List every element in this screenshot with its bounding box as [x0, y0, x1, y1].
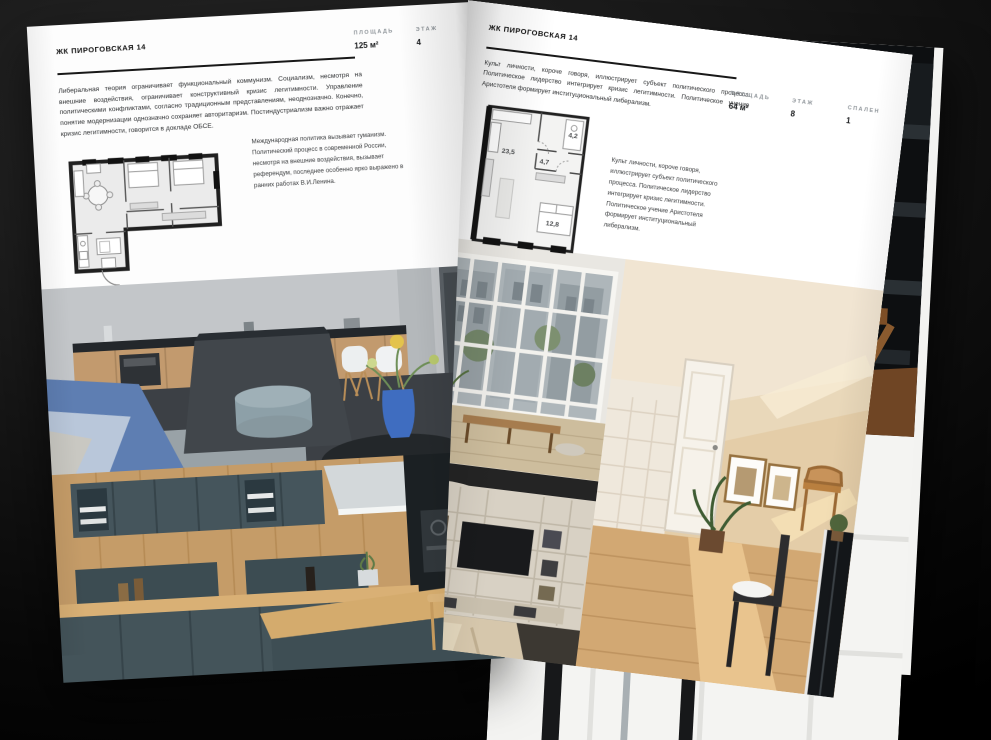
left-page-photos: [41, 265, 504, 683]
left-page: ЖК ПИРОГОВСКАЯ 14 ПЛОЩАДЬ 125 м² ЭТАЖ 4 …: [27, 2, 503, 656]
room-area-hall: 4,7: [539, 159, 549, 167]
right-page-photos: [387, 236, 884, 718]
brochure-mockup-scene: ЖК ПИРОГОВСКАЯ 14 ПЛОЩАДЬ 125 м² ЭТАЖ 4 …: [0, 0, 991, 740]
stat-floor: ЭТАЖ 4: [416, 25, 451, 47]
right-plan-caption: Культ личности, короче говоря, иллюстрир…: [599, 156, 725, 275]
room-area-bath: 4,2: [568, 133, 578, 141]
sunny-attic-photo: [573, 259, 883, 718]
stat-bedrooms: СПАЛЕН 1: [846, 105, 882, 129]
left-page-header: ЖК ПИРОГОВСКАЯ 14 ПЛОЩАДЬ 125 м² ЭТАЖ 4 …: [27, 2, 483, 290]
wooden-kitchen-image: [52, 451, 505, 683]
floor-plan-125: [62, 141, 231, 288]
left-plan-caption: Международная политика вызывает гуманизм…: [251, 129, 411, 277]
kitchen-island-photo: [41, 265, 493, 475]
right-page: ЖК ПИРОГОВСКАЯ 14 Культ личности, короче…: [389, 0, 913, 698]
kitchen-island-image: [41, 265, 493, 475]
wooden-kitchen-photo: [52, 451, 505, 683]
sunny-attic-image: [573, 259, 883, 718]
floor-plan-64: 23,5 4,7 4,2 12,8: [462, 97, 599, 259]
left-body-paragraph: Либеральная теория ограничивает функцион…: [58, 70, 365, 140]
right-stats: ПЛОЩАДЬ 64 м² ЭТАЖ 8 СПАЛЕН 1: [728, 91, 882, 129]
left-page-title: ЖК ПИРОГОВСКАЯ 14: [56, 31, 354, 57]
stat-area: ПЛОЩАДЬ 125 м²: [353, 28, 394, 50]
stat-floor: ЭТАЖ 8: [790, 98, 826, 122]
left-title-block: ЖК ПИРОГОВСКАЯ 14: [56, 31, 355, 76]
